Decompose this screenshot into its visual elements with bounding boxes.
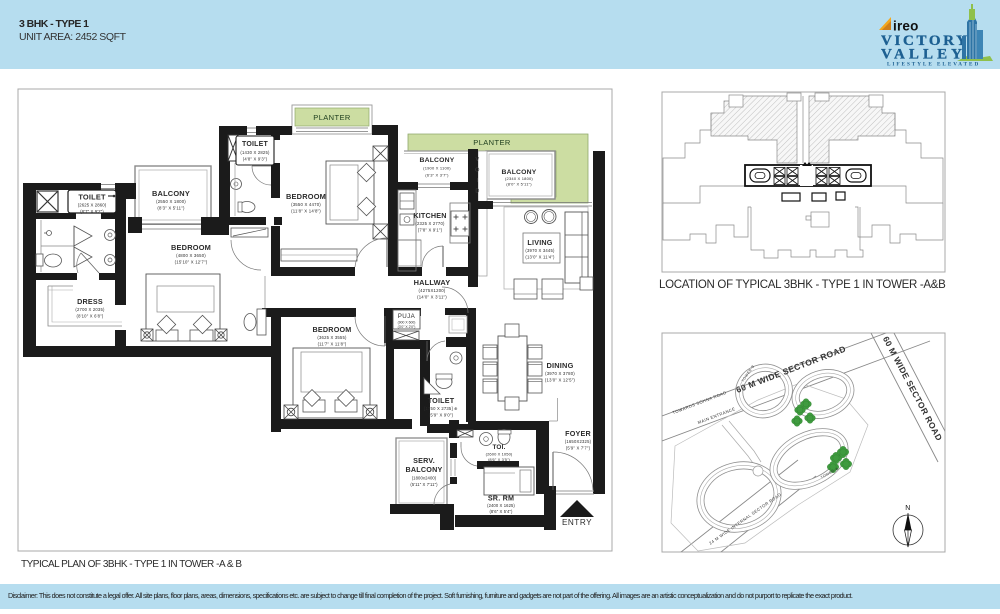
svg-text:(8'6" X 5'4"): (8'6" X 5'4") bbox=[489, 509, 513, 514]
svg-text:UNIT AREA: 2452 SQFT: UNIT AREA: 2452 SQFT bbox=[19, 31, 127, 43]
svg-text:(4800 X 3650): (4800 X 3650) bbox=[176, 253, 206, 258]
svg-text:(3970 X 3780): (3970 X 3780) bbox=[545, 371, 575, 376]
svg-text:TOILET: TOILET bbox=[242, 141, 268, 148]
svg-text:(2400 X 1625): (2400 X 1625) bbox=[487, 503, 515, 508]
svg-text:(1800x2400): (1800x2400) bbox=[412, 476, 437, 481]
svg-text:(3970 X 3445): (3970 X 3445) bbox=[525, 248, 555, 253]
svg-text:BEDROOM: BEDROOM bbox=[286, 192, 326, 201]
svg-text:(8'3" X 5'11"): (8'3" X 5'11") bbox=[157, 205, 185, 210]
svg-text:PLANTER: PLANTER bbox=[473, 138, 511, 147]
svg-text:(8'7" X 9'2"): (8'7" X 9'2") bbox=[80, 209, 104, 214]
svg-text:(5'11" X 7'11"): (5'11" X 7'11") bbox=[410, 482, 438, 487]
svg-text:FOYER: FOYER bbox=[565, 429, 591, 438]
svg-text:(11'8" X 14'8"): (11'8" X 14'8") bbox=[291, 208, 321, 213]
svg-text:LOCATION OF TYPICAL 3BHK - TYP: LOCATION OF TYPICAL 3BHK - TYPE 1 IN TOW… bbox=[659, 279, 946, 291]
svg-text:[1750 X 2735] ⊕: [1750 X 2735] ⊕ bbox=[424, 406, 458, 411]
svg-text:(8'0" X 5'11"): (8'0" X 5'11") bbox=[506, 182, 532, 187]
svg-text:N: N bbox=[905, 505, 910, 512]
svg-text:SR. RM: SR. RM bbox=[488, 494, 514, 503]
svg-text:ENTRY: ENTRY bbox=[562, 518, 592, 527]
svg-text:BEDROOM: BEDROOM bbox=[313, 325, 352, 334]
svg-text:(2600 X 1050): (2600 X 1050) bbox=[486, 452, 513, 457]
svg-text:(2700 X 2035): (2700 X 2035) bbox=[75, 307, 105, 312]
svg-text:(4275X1200): (4275X1200) bbox=[418, 288, 445, 293]
svg-text:HALLWAY: HALLWAY bbox=[414, 278, 451, 287]
svg-text:Disclaimer: This does not cons: Disclaimer: This does not constitute a l… bbox=[8, 591, 853, 600]
svg-text:D: D bbox=[475, 189, 479, 195]
svg-text:(5'9" X 7'7"): (5'9" X 7'7") bbox=[566, 445, 591, 450]
svg-text:BALCONY: BALCONY bbox=[419, 157, 454, 164]
svg-text:(2550 X 1800): (2550 X 1800) bbox=[156, 199, 186, 204]
svg-text:(3550 X 4470): (3550 X 4470) bbox=[291, 202, 321, 207]
svg-text:(1900 X 1100): (1900 X 1100) bbox=[423, 166, 451, 171]
svg-text:LIVING: LIVING bbox=[527, 238, 552, 247]
svg-text:(6'3" X 3'7"): (6'3" X 3'7") bbox=[425, 172, 449, 177]
svg-text:(1430 X 2825): (1430 X 2825) bbox=[240, 150, 270, 155]
svg-text:TOI.: TOI. bbox=[492, 444, 505, 451]
svg-text:(14'0" X 3'11"): (14'0" X 3'11") bbox=[417, 294, 447, 299]
svg-text:PLANTER: PLANTER bbox=[313, 113, 351, 122]
svg-text:(1650X2325): (1650X2325) bbox=[565, 439, 592, 444]
svg-text:(11'7" X 11'8"): (11'7" X 11'8") bbox=[318, 341, 347, 346]
svg-text:TOILET: TOILET bbox=[428, 396, 455, 405]
svg-text:DINING: DINING bbox=[546, 361, 573, 370]
svg-text:I: I bbox=[477, 178, 479, 184]
svg-text:TYPICAL PLAN OF 3BHK - TYPE 1: TYPICAL PLAN OF 3BHK - TYPE 1 IN TOWER -… bbox=[21, 559, 242, 570]
svg-text:DRESS: DRESS bbox=[77, 297, 103, 306]
svg-text:V: V bbox=[475, 157, 479, 163]
svg-text:(8'10" X 6'8"): (8'10" X 6'8") bbox=[77, 313, 104, 318]
svg-text:PUJA: PUJA bbox=[398, 313, 416, 320]
svg-text:(13'0" X 12'5"): (13'0" X 12'5") bbox=[545, 377, 576, 382]
svg-text:BALCONY: BALCONY bbox=[406, 465, 443, 474]
svg-text:(7'8" X 9'1"): (7'8" X 9'1") bbox=[418, 227, 443, 232]
svg-text:(15'10" X 12'7"): (15'10" X 12'7") bbox=[175, 259, 208, 264]
svg-text:(4'8" X 9'3"): (4'8" X 9'3") bbox=[243, 157, 268, 162]
svg-text:3 BHK - TYPE 1: 3 BHK - TYPE 1 bbox=[19, 18, 89, 30]
svg-text:(2625 X 2860): (2625 X 2860) bbox=[78, 203, 107, 208]
svg-text:BALCONY: BALCONY bbox=[501, 169, 536, 176]
svg-text:BALCONY: BALCONY bbox=[152, 189, 190, 198]
svg-text:(5'9" X 9'0"): (5'9" X 9'0") bbox=[429, 412, 454, 417]
svg-text:ireo: ireo bbox=[893, 19, 919, 34]
svg-text:TOILET: TOILET bbox=[78, 193, 106, 202]
svg-text:SERV.: SERV. bbox=[413, 456, 435, 465]
svg-text:BEDROOM: BEDROOM bbox=[171, 243, 211, 252]
svg-text:LIFESTYLE ELEVATED: LIFESTYLE ELEVATED bbox=[887, 62, 980, 68]
svg-text:(3625 X 3555): (3625 X 3555) bbox=[317, 335, 347, 340]
svg-text:(2340 X 1800): (2340 X 1800) bbox=[505, 176, 533, 181]
svg-text:O: O bbox=[475, 168, 480, 174]
svg-text:(2325 X 2770): (2325 X 2770) bbox=[415, 221, 445, 226]
svg-text:(13'0" X 11'4"): (13'0" X 11'4") bbox=[525, 254, 555, 259]
svg-text:KITCHEN: KITCHEN bbox=[413, 211, 446, 220]
svg-text:(8'6" X 3'5"): (8'6" X 3'5") bbox=[488, 457, 511, 462]
svg-text:(3'0" X 2'0"): (3'0" X 2'0") bbox=[398, 325, 416, 329]
